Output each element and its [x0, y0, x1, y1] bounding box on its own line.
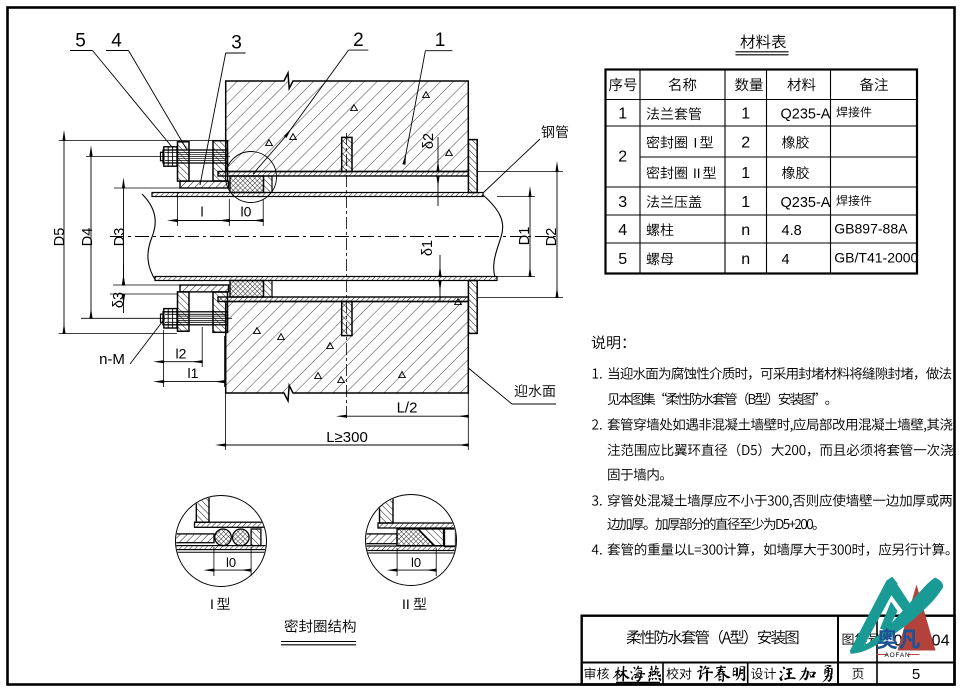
svg-text:II: II: [693, 166, 701, 181]
svg-text:l0: l0: [241, 204, 252, 220]
svg-text:3: 3: [618, 194, 627, 211]
svg-text:1: 1: [741, 194, 750, 211]
svg-text:4.8: 4.8: [782, 223, 802, 239]
svg-text:GB897-88A: GB897-88A: [834, 221, 908, 237]
svg-text:1: 1: [741, 165, 750, 182]
svg-text:I: I: [694, 136, 698, 151]
svg-text:AOFAN: AOFAN: [884, 652, 910, 659]
svg-text:D2: D2: [544, 228, 560, 247]
svg-text:l1: l1: [188, 365, 199, 381]
svg-text:3: 3: [231, 33, 242, 54]
svg-text:D5: D5: [52, 228, 68, 247]
svg-text:L/2: L/2: [397, 400, 418, 417]
svg-text:L≥300: L≥300: [326, 429, 368, 446]
svg-text:1: 1: [618, 106, 627, 123]
svg-text:δ2: δ2: [421, 133, 437, 149]
svg-text:1: 1: [435, 30, 446, 51]
svg-text:4: 4: [111, 31, 122, 52]
svg-text:D3: D3: [112, 228, 128, 247]
svg-text:l0: l0: [226, 555, 236, 570]
svg-text:5: 5: [912, 666, 920, 683]
svg-text:2: 2: [741, 135, 750, 152]
svg-text:l0: l0: [411, 555, 421, 570]
svg-text:2: 2: [618, 149, 627, 166]
svg-text:2: 2: [353, 30, 364, 51]
svg-text:l2: l2: [176, 346, 187, 362]
svg-text:n: n: [741, 251, 750, 268]
svg-text:Q235-A: Q235-A: [781, 107, 831, 123]
svg-text:II: II: [402, 596, 410, 612]
svg-text:δ1: δ1: [420, 240, 436, 256]
svg-text:I: I: [210, 596, 214, 612]
svg-text:5: 5: [75, 31, 86, 52]
svg-text:l: l: [200, 204, 203, 220]
svg-text:n: n: [741, 222, 750, 239]
svg-text:δ3: δ3: [111, 292, 127, 308]
svg-text:1: 1: [741, 106, 750, 123]
svg-text:5: 5: [618, 251, 627, 268]
svg-text:D4: D4: [80, 228, 96, 247]
svg-text:4: 4: [618, 222, 627, 239]
svg-text:n-M: n-M: [99, 351, 125, 368]
svg-text:Q235-A: Q235-A: [781, 195, 831, 211]
svg-text:GB/T41-2000: GB/T41-2000: [834, 250, 918, 266]
svg-text:D1: D1: [517, 227, 533, 246]
svg-text:4: 4: [782, 252, 790, 268]
